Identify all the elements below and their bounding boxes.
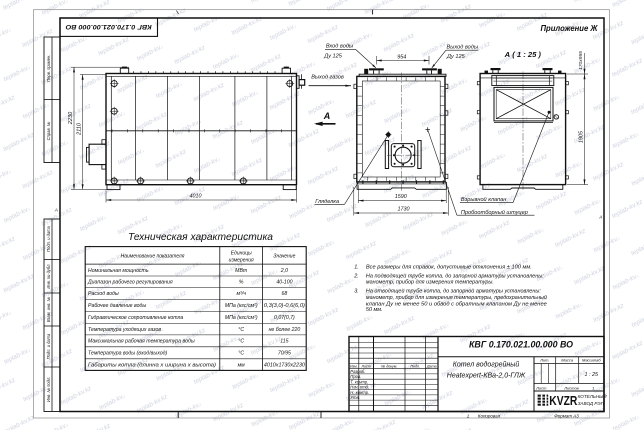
svg-text:Ду 125: Ду 125 xyxy=(323,53,343,59)
svg-text:Пров.: Пров. xyxy=(350,374,361,379)
svg-text:Инв. № подл.: Инв. № подл. xyxy=(46,377,51,402)
svg-text:4010х1730х2230: 4010х1730х2230 xyxy=(264,362,305,368)
svg-text:°С: °С xyxy=(238,327,244,333)
svg-text:Температура воды (вход/выход): Температура воды (вход/выход) xyxy=(88,351,167,357)
svg-text:Вход воды: Вход воды xyxy=(326,44,353,50)
svg-text:Габариты котла (длинна х ширин: Габариты котла (длинна х ширина х высота… xyxy=(88,362,216,368)
svg-text:954: 954 xyxy=(397,54,406,60)
svg-text:1590: 1590 xyxy=(395,194,407,200)
svg-text:Heatexpert-КВа-2,0-ГЛЖ: Heatexpert-КВа-2,0-ГЛЖ xyxy=(447,373,526,380)
svg-text:МПа (кгс/см²): МПа (кгс/см²) xyxy=(225,315,258,321)
svg-text:Техническая характеристика: Техническая характеристика xyxy=(128,232,273,243)
svg-text:2,0: 2,0 xyxy=(280,268,288,274)
svg-text:клапан Ду не менее 50 и обвод: клапан Ду не менее 50 и обвод с обратным… xyxy=(366,301,547,307)
svg-text:170х955: 170х955 xyxy=(578,51,584,70)
svg-text:1905: 1905 xyxy=(579,130,585,143)
svg-text:Масштаб: Масштаб xyxy=(582,358,601,363)
svg-text:Подп. и дата: Подп. и дата xyxy=(46,333,51,359)
svg-text:Рабочее давление воды: Рабочее давление воды xyxy=(88,303,146,309)
svg-text:2230: 2230 xyxy=(68,111,74,125)
svg-text:2110: 2110 xyxy=(76,122,82,136)
svg-text:Гляделка: Гляделка xyxy=(315,199,339,205)
svg-text:А: А xyxy=(54,208,58,213)
svg-text:4010: 4010 xyxy=(190,193,202,199)
svg-text:Температура уходящих газов: Температура уходящих газов xyxy=(88,327,161,333)
svg-text:Лист: Лист xyxy=(360,364,371,368)
svg-text:мм: мм xyxy=(238,362,246,368)
svg-text:А: А xyxy=(598,215,602,220)
svg-text:Котел водогрейный: Котел водогрейный xyxy=(453,361,520,369)
svg-text:Формат А3: Формат А3 xyxy=(554,413,579,418)
svg-text:Лист: Лист xyxy=(535,385,547,390)
svg-text:Ду 125: Ду 125 xyxy=(446,54,466,60)
svg-text:Масса: Масса xyxy=(561,358,574,363)
svg-text:КВГ 0.170.021.00.000 ВО: КВГ 0.170.021.00.000 ВО xyxy=(65,23,152,30)
svg-text:40-100: 40-100 xyxy=(276,280,292,286)
svg-text:А ( 1 : 25 ): А ( 1 : 25 ) xyxy=(504,50,542,59)
svg-text:ЗАВОД РЭП: ЗАВОД РЭП xyxy=(578,401,605,406)
svg-text:115: 115 xyxy=(280,339,288,345)
svg-text:Дата: Дата xyxy=(426,364,437,368)
svg-text:Изм.: Изм. xyxy=(350,364,358,368)
svg-text:Утв.: Утв. xyxy=(350,395,360,400)
svg-text:KVZR: KVZR xyxy=(549,394,577,408)
svg-text:Наименование показателя: Наименование показателя xyxy=(121,253,185,259)
svg-text:Копировал: Копировал xyxy=(478,413,501,418)
svg-text:2.: 2. xyxy=(353,274,359,280)
svg-text:КВГ 0.170.021.00.000 ВО: КВГ 0.170.021.00.000 ВО xyxy=(469,340,573,350)
svg-text:°С: °С xyxy=(238,339,244,345)
svg-text:Приложение Ж: Приложение Ж xyxy=(541,24,599,33)
svg-text:Значение: Значение xyxy=(273,253,295,259)
svg-text:°С: °С xyxy=(238,351,244,357)
svg-text:Взрывной клапан: Взрывной клапан xyxy=(461,196,506,203)
svg-text:На отводящей трубе котла, до з: На отводящей трубе котла, до запорной ар… xyxy=(366,288,541,295)
svg-text:1 : 25: 1 : 25 xyxy=(585,372,599,378)
svg-text:Гидравлическое сопротивление к: Гидравлическое сопротивление котла xyxy=(88,315,183,321)
svg-text:№ докум.: № докум. xyxy=(381,364,397,368)
svg-text:Подп. и дата: Подп. и дата xyxy=(46,225,51,251)
svg-text:Все размеры для справок, допус: Все размеры для справок, допустимые откл… xyxy=(366,264,532,270)
svg-text:70/95: 70/95 xyxy=(278,351,291,357)
svg-text:Расход воды: Расход воды xyxy=(88,291,119,297)
svg-text:Выход газов: Выход газов xyxy=(311,75,344,81)
svg-text:68: 68 xyxy=(282,291,288,297)
svg-text:КОТЕЛЬНЫЙ: КОТЕЛЬНЫЙ xyxy=(578,392,608,399)
svg-text:50 мм.: 50 мм. xyxy=(366,307,383,313)
svg-text:1.: 1. xyxy=(354,264,359,270)
svg-text:МВт: МВт xyxy=(235,268,248,274)
svg-text:Диапазон рабочего регулировани: Диапазон рабочего регулирования xyxy=(87,280,173,286)
svg-text:Справ. №: Справ. № xyxy=(46,121,51,140)
svg-text:3.: 3. xyxy=(354,289,359,295)
svg-text:не более 220: не более 220 xyxy=(269,327,301,333)
svg-text:Перв. примен.: Перв. примен. xyxy=(46,55,51,82)
svg-text:м³/ч: м³/ч xyxy=(236,291,246,297)
svg-text:Нач. отд.: Нач. отд. xyxy=(350,385,369,390)
svg-text:1: 1 xyxy=(592,385,594,390)
svg-text:Номинальная мощность: Номинальная мощность xyxy=(88,268,149,274)
svg-text:МПа (кгс/см²): МПа (кгс/см²) xyxy=(225,303,258,309)
svg-text:измерения: измерения xyxy=(229,257,254,263)
svg-text:0,07(0,7): 0,07(0,7) xyxy=(274,315,295,321)
svg-text:0,3(3,0)-0,6(6,0): 0,3(3,0)-0,6(6,0) xyxy=(264,303,305,309)
svg-text:Пробоотборный штуцер: Пробоотборный штуцер xyxy=(461,209,528,216)
svg-text:манометр, прибор для измерения: манометр, прибор для измерения температу… xyxy=(366,294,547,301)
svg-text:Максимальная рабочая температу: Максимальная рабочая температура воды xyxy=(88,339,195,345)
svg-text:А: А xyxy=(323,111,331,121)
svg-text:Лит.: Лит. xyxy=(539,358,549,363)
svg-text:1730: 1730 xyxy=(398,206,410,212)
svg-text:Единицы: Единицы xyxy=(231,250,252,256)
svg-text:манометр, прибор для измерения: манометр, прибор для измерения температу… xyxy=(366,280,494,286)
svg-text:Подп.: Подп. xyxy=(410,364,420,368)
svg-text:Выход воды: Выход воды xyxy=(447,45,478,51)
svg-text:%: % xyxy=(239,280,244,286)
svg-text:Инв. № дубл.: Инв. № дубл. xyxy=(46,263,51,288)
svg-text:Листов: Листов xyxy=(563,385,579,390)
svg-text:Взам. инв. №: Взам. инв. № xyxy=(46,296,51,322)
